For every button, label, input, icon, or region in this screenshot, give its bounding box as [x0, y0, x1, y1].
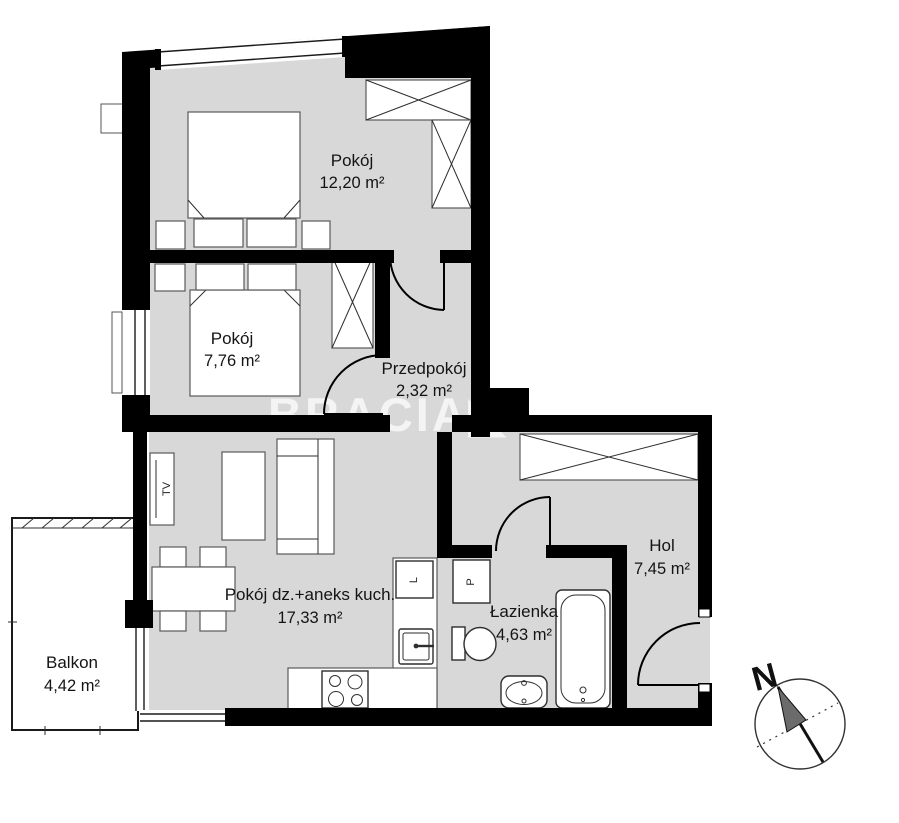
fridge: L [396, 561, 433, 598]
room-name: Pokój [211, 329, 254, 348]
nightstand-room-2 [155, 264, 185, 291]
sofa [277, 439, 334, 554]
tv-cabinet: TV [150, 453, 174, 525]
bathroom-sink [501, 676, 547, 708]
nightstand-left-room-1 [156, 221, 185, 249]
tv-label: TV [161, 481, 173, 496]
wardrobe-room-2 [332, 256, 373, 348]
room-area: 17,33 m² [277, 609, 343, 627]
room-area: 2,32 m² [396, 382, 452, 400]
toilet [452, 627, 496, 661]
room-name: Hol [649, 536, 675, 555]
room-name: Przedpokój [381, 359, 466, 378]
room-name: Pokój [331, 151, 374, 170]
floor-plan-svg: TV L P [0, 0, 899, 823]
kitchen-sink [399, 629, 434, 664]
room-name: Balkon [46, 653, 98, 672]
room-area: 7,76 m² [204, 352, 260, 370]
room-name: Pokój dz.+aneks kuch. [225, 585, 396, 604]
compass-rose-icon: N [748, 656, 845, 769]
coffee-table [222, 452, 265, 540]
room-area: 4,63 m² [496, 626, 552, 644]
window-room-2 [112, 310, 150, 395]
room-name: Łazienka [490, 602, 559, 621]
stove [322, 671, 368, 708]
room-area: 12,20 m² [319, 174, 385, 192]
room-area: 7,45 m² [634, 560, 690, 578]
washing-machine: P [453, 560, 490, 603]
washer-label: P [465, 578, 477, 585]
balcony-outline [8, 518, 138, 735]
nightstand-right-room-1 [302, 221, 330, 249]
room-area: 4,42 m² [44, 677, 100, 695]
north-label: N [748, 656, 782, 699]
bathtub [556, 590, 610, 708]
fridge-label: L [408, 577, 420, 583]
floor-plan-page: TV L P [0, 0, 899, 823]
